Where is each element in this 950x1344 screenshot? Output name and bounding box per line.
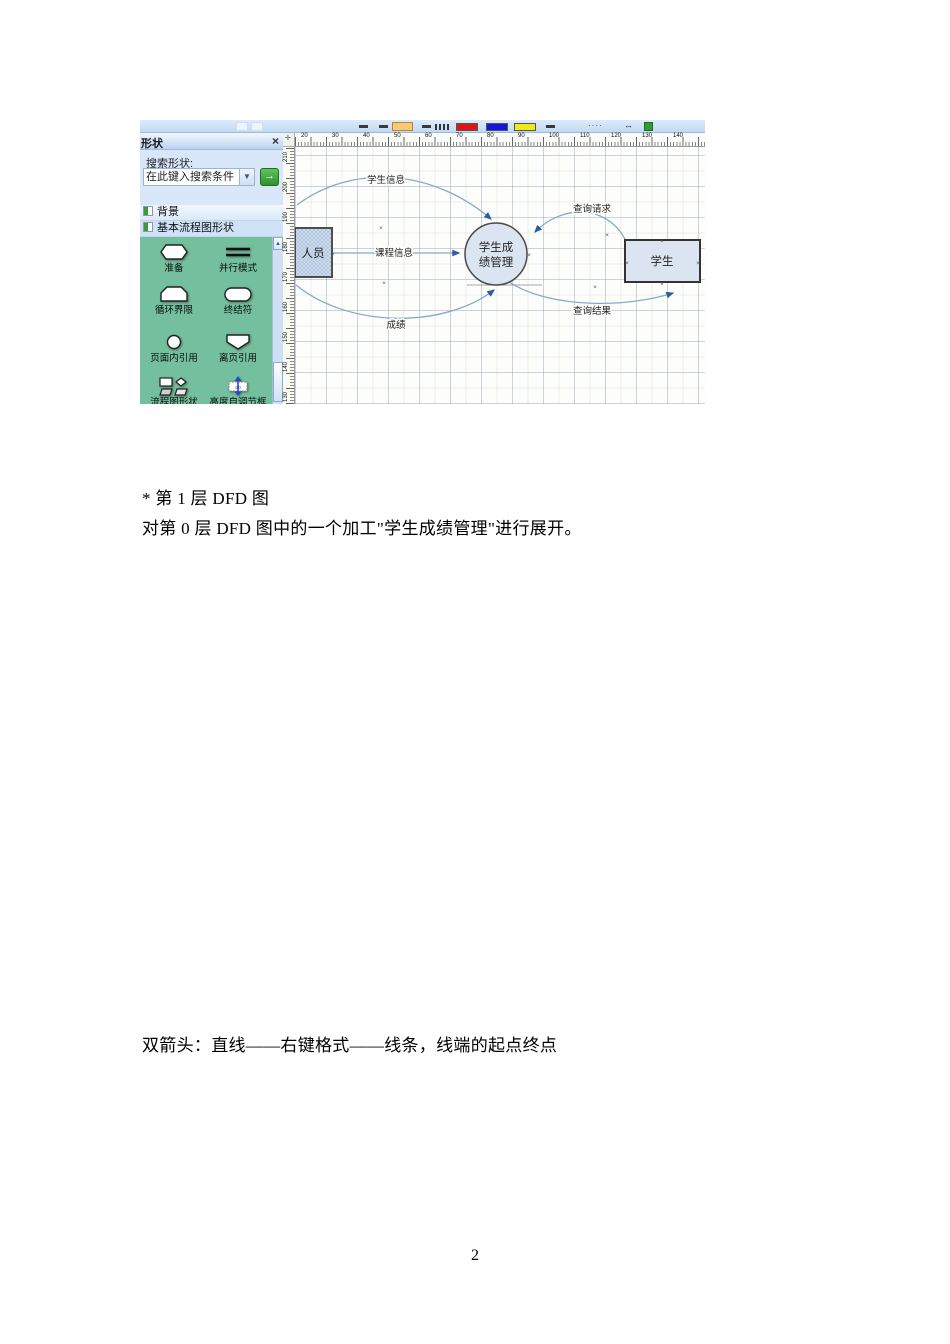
pattern-icon[interactable] xyxy=(435,124,451,130)
font-color-red-swatch[interactable] xyxy=(456,123,478,131)
process-score-management-shape[interactable] xyxy=(465,223,527,285)
flow-student-info-label: 学生信息 xyxy=(367,174,405,186)
toolbar-strip: ···· ↔ xyxy=(140,120,705,133)
drawing-canvas-area: 2030405060708090100110120130140 21020019… xyxy=(283,133,705,404)
shadow-icon[interactable] xyxy=(546,125,555,128)
v-ruler-label: 170 xyxy=(283,270,289,282)
stencil-icon xyxy=(143,206,153,216)
pentagon-icon xyxy=(207,331,269,353)
loop-limit-icon xyxy=(143,283,205,305)
fill-color-yellow-swatch[interactable] xyxy=(514,123,536,131)
document-page: ···· ↔ 形状 × 搜索形状: 在此键入搜索条件 ▼ → 背景 基本流程 xyxy=(0,0,950,1344)
flow-score-label: 成绩 xyxy=(386,319,406,331)
master-shape-on-page-reference[interactable]: 页面内引用 xyxy=(143,331,205,364)
double-arrow-icon[interactable]: ↔ xyxy=(624,120,633,130)
paragraph-double-arrow-note: 双箭头：直线——右键格式——线条，线端的起点终点 xyxy=(142,1031,557,1056)
terminator-icon xyxy=(207,283,269,305)
flow-query-result-label: 查询结果 xyxy=(573,305,612,317)
v-ruler-label: 200 xyxy=(283,180,289,192)
h-ruler-label: 80 xyxy=(487,133,494,139)
flow-course-info-label: 课程信息 xyxy=(375,247,413,259)
svg-text:×: × xyxy=(605,232,609,239)
v-ruler-label: 180 xyxy=(283,240,289,252)
flow-score-connector[interactable] xyxy=(296,285,494,318)
h-ruler-label: 20 xyxy=(301,133,308,139)
shapes-panel-title: 形状 xyxy=(141,135,163,151)
v-ruler-label: 210 xyxy=(283,150,289,162)
entity-student-label: 学生 xyxy=(651,254,674,268)
shape-group-icon xyxy=(143,375,205,397)
more-options-icon[interactable]: ···· xyxy=(588,121,603,130)
h-ruler-label: 90 xyxy=(518,133,525,139)
line-weight-icon[interactable] xyxy=(359,125,368,128)
h-ruler-label: 40 xyxy=(363,133,370,139)
flow-query-request-connector[interactable] xyxy=(535,212,626,241)
scroll-up-icon[interactable]: ▲ xyxy=(273,237,283,250)
visio-screenshot: ···· ↔ 形状 × 搜索形状: 在此键入搜索条件 ▼ → 背景 基本流程 xyxy=(140,120,705,404)
h-ruler-label: 130 xyxy=(642,133,652,139)
close-icon[interactable]: × xyxy=(272,134,279,148)
h-ruler-label: 140 xyxy=(673,133,683,139)
line-color-blue-swatch[interactable] xyxy=(486,123,508,131)
v-ruler-label: 160 xyxy=(283,300,289,312)
svg-text:×: × xyxy=(660,281,664,288)
flow-query-request-label: 查询请求 xyxy=(573,203,612,215)
paragraph-dfd-description: 对第 0 层 DFD 图中的一个加工"学生成绩管理"进行展开。 xyxy=(142,514,582,539)
toolbar-button[interactable] xyxy=(251,122,263,131)
h-ruler-label: 120 xyxy=(611,133,621,139)
search-row: 在此键入搜索条件 ▼ → xyxy=(143,168,280,186)
parallel-lines-icon xyxy=(207,241,269,263)
search-input[interactable]: 在此键入搜索条件 ▼ xyxy=(143,168,255,186)
vertical-ruler: 210200190180170160150140130 xyxy=(283,147,295,404)
h-ruler-label: 110 xyxy=(580,133,590,139)
svg-text:×: × xyxy=(379,225,383,232)
master-shape-terminator[interactable]: 终结符 xyxy=(207,283,269,316)
stencil-section-background[interactable]: 背景 xyxy=(140,205,283,221)
ruler-origin-icon xyxy=(283,133,295,147)
line-ends-icon[interactable] xyxy=(422,125,431,128)
master-shape-flowchart-shapes[interactable]: 流程图形状 xyxy=(143,375,205,404)
scrollbar-thumb[interactable] xyxy=(273,362,283,402)
stencil-shape-list: 准备 并行模式 循环界限 xyxy=(140,237,283,404)
stencil-scrollbar[interactable]: ▲ xyxy=(272,237,283,404)
svg-text:×: × xyxy=(625,260,629,267)
svg-text:×: × xyxy=(331,251,335,258)
toolbar-button[interactable] xyxy=(236,122,248,131)
v-ruler-label: 150 xyxy=(283,330,289,342)
shapes-panel: 形状 × 搜索形状: 在此键入搜索条件 ▼ → 背景 基本流程图形状 xyxy=(140,133,283,404)
circle-icon xyxy=(143,331,205,353)
chevron-down-icon[interactable]: ▼ xyxy=(239,169,254,185)
process-label-line2: 绩管理 xyxy=(479,255,514,269)
auto-height-box-icon: ab xyxy=(207,375,269,397)
line-style-icon[interactable] xyxy=(379,125,388,128)
h-ruler-label: 50 xyxy=(394,133,401,139)
h-ruler-label: 100 xyxy=(549,133,559,139)
search-input-value: 在此键入搜索条件 xyxy=(146,171,234,183)
master-shape-parallel-mode[interactable]: 并行模式 xyxy=(207,241,269,274)
process-label-line1: 学生成 xyxy=(479,240,514,254)
master-shape-off-page-reference[interactable]: 离页引用 xyxy=(207,331,269,364)
hexagon-icon xyxy=(143,241,205,263)
v-ruler-label: 140 xyxy=(283,360,289,372)
drawing-page[interactable]: 人员 学生成 绩管理 学生 学生信息 课程信息 成绩 查询请求 查询结果 xyxy=(295,147,705,404)
dfd-diagram: 人员 学生成 绩管理 学生 学生信息 课程信息 成绩 查询请求 查询结果 xyxy=(295,147,705,404)
horizontal-ruler: 2030405060708090100110120130140 xyxy=(295,133,705,147)
paragraph-dfd-title: * 第 1 层 DFD 图 xyxy=(142,484,269,509)
v-ruler-label: 190 xyxy=(283,210,289,222)
h-ruler-label: 30 xyxy=(332,133,339,139)
svg-text:×: × xyxy=(593,284,597,291)
check-icon[interactable] xyxy=(644,122,653,131)
h-ruler-label: 60 xyxy=(425,133,432,139)
stencil-icon xyxy=(143,222,153,232)
svg-text:×: × xyxy=(660,238,664,245)
master-shape-loop-limit[interactable]: 循环界限 xyxy=(143,283,205,316)
master-shape-auto-height-box[interactable]: ab 高度自调节框 xyxy=(207,375,269,404)
active-tool-button[interactable] xyxy=(392,122,413,131)
entity-personnel-label: 人员 xyxy=(302,247,325,260)
search-go-button[interactable]: → xyxy=(260,168,279,186)
stencil-section-basic-flowchart[interactable]: 基本流程图形状 xyxy=(140,221,283,237)
svg-text:×: × xyxy=(696,260,700,267)
h-ruler-label: 70 xyxy=(456,133,463,139)
v-ruler-label: 130 xyxy=(283,390,289,402)
svg-text:×: × xyxy=(382,280,386,287)
shapes-panel-titlebar: 形状 × xyxy=(140,133,283,150)
svg-text:×: × xyxy=(527,252,531,259)
page-number: 2 xyxy=(0,1247,950,1265)
master-shape-prepare[interactable]: 准备 xyxy=(143,241,205,274)
